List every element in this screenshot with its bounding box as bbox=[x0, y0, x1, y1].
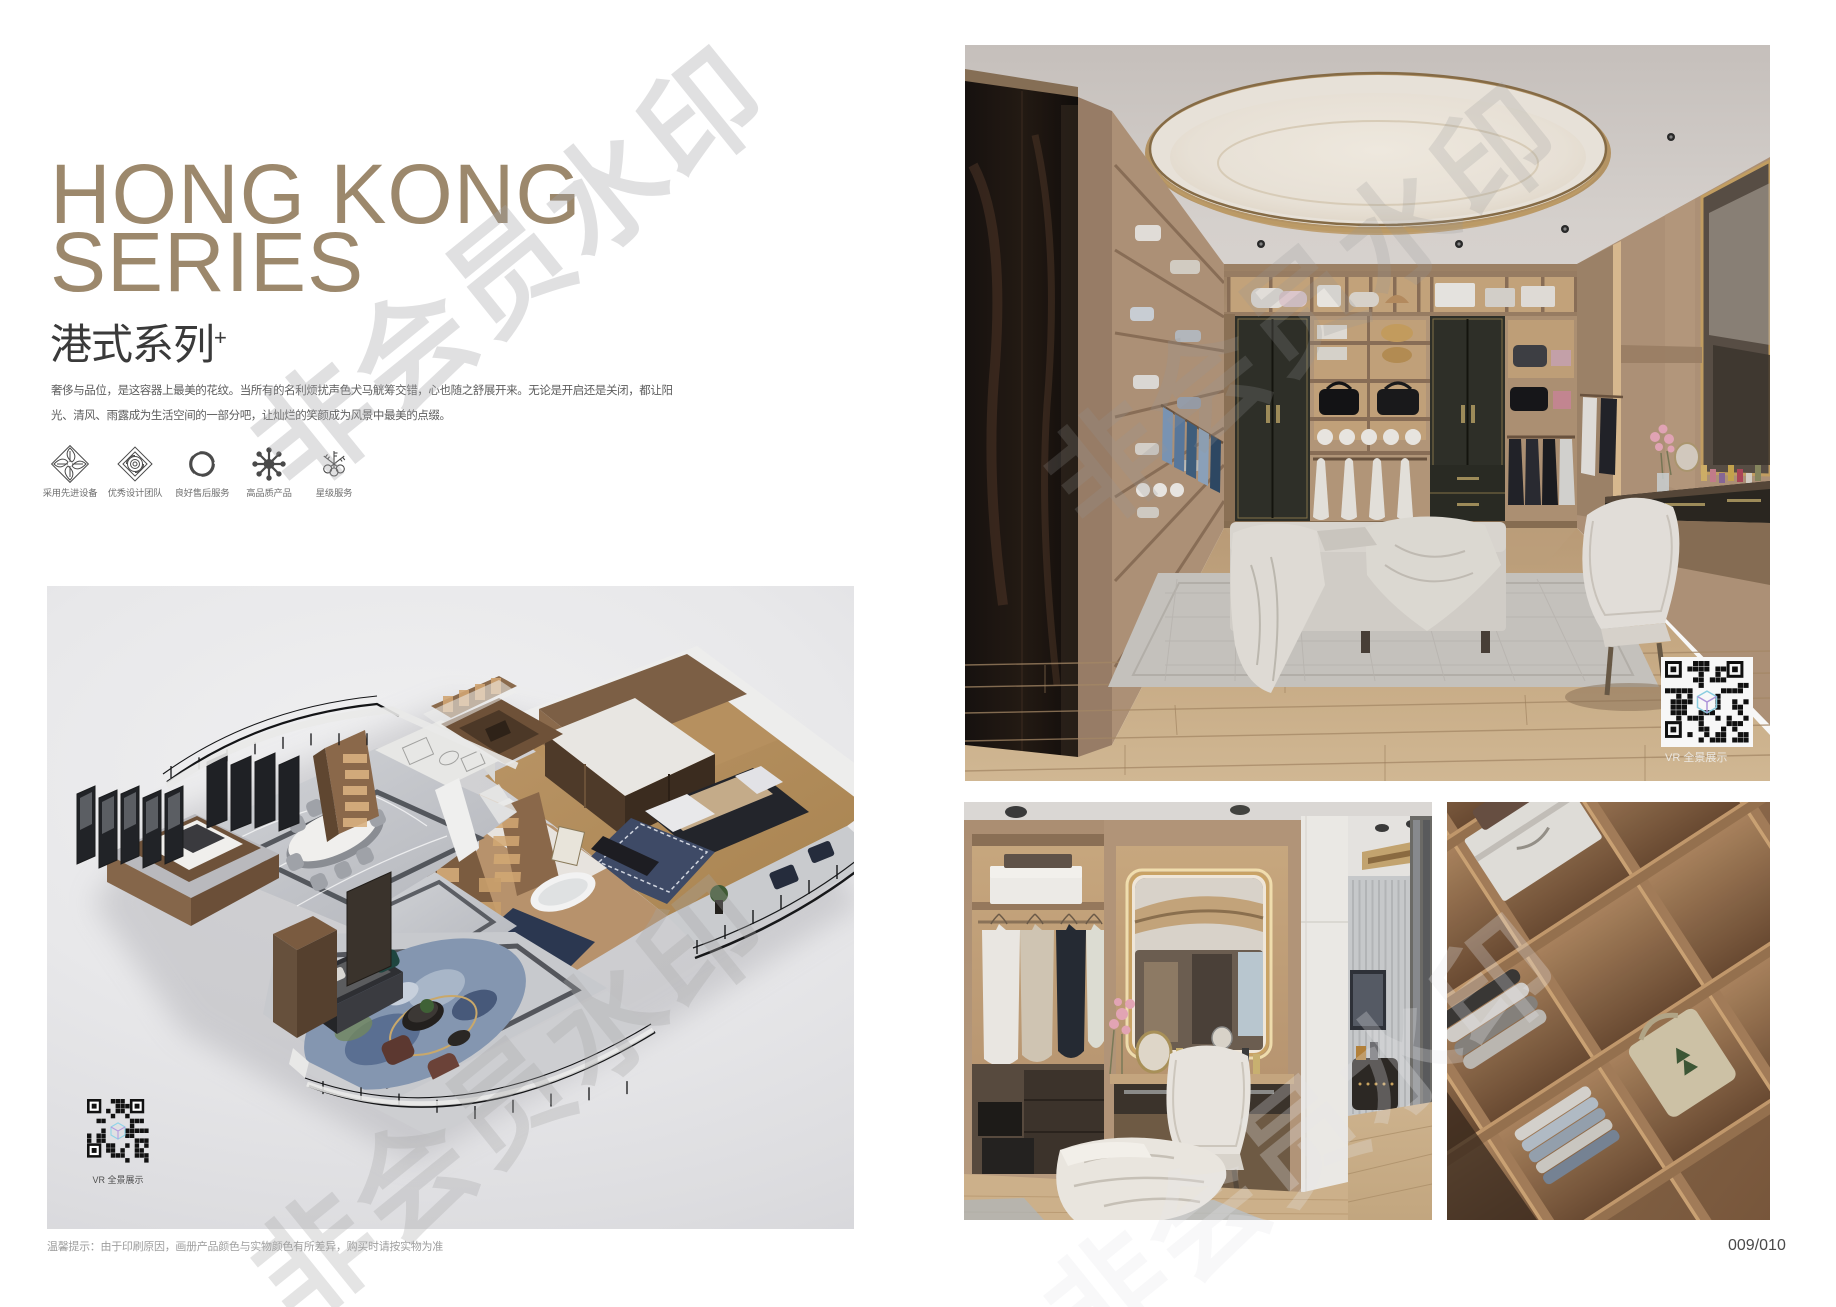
svg-text:良好售后服务: 良好售后服务 bbox=[175, 487, 230, 498]
svg-text:星级服务: 星级服务 bbox=[316, 487, 352, 498]
svg-text:高品质产品: 高品质产品 bbox=[246, 487, 292, 498]
svg-text:VR 全景展示: VR 全景展示 bbox=[92, 1174, 143, 1185]
svg-text:优秀设计团队: 优秀设计团队 bbox=[108, 487, 163, 498]
svg-text:采用先进设备: 采用先进设备 bbox=[43, 487, 98, 498]
